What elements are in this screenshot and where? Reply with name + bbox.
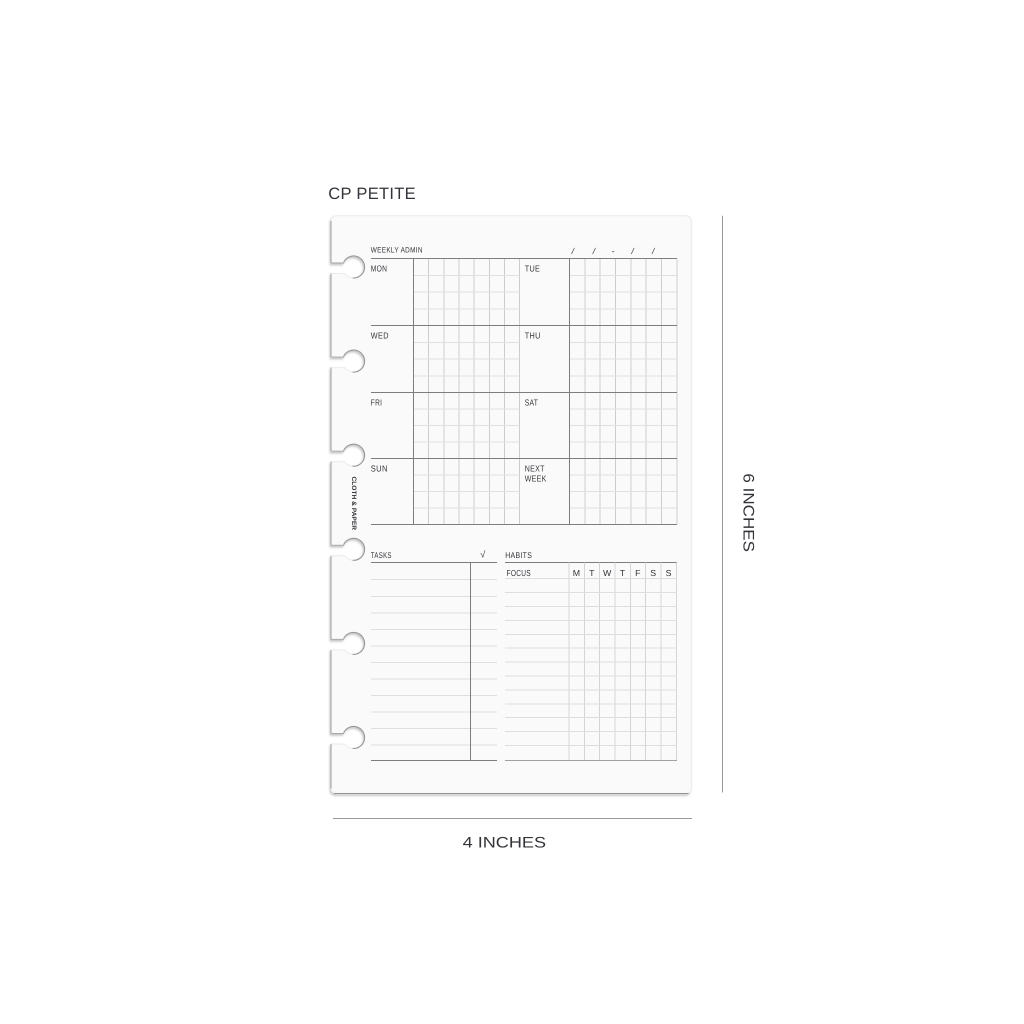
svg-text:M: M <box>573 568 581 578</box>
svg-text:F: F <box>635 568 641 578</box>
svg-text:TASKS: TASKS <box>371 550 392 560</box>
svg-text:NEXT: NEXT <box>525 464 545 474</box>
svg-text:6 INCHES: 6 INCHES <box>740 473 757 552</box>
svg-text:-: - <box>612 246 615 256</box>
svg-text:S: S <box>650 568 656 578</box>
svg-text:FOCUS: FOCUS <box>507 568 532 578</box>
svg-text:√: √ <box>480 549 486 559</box>
svg-text:WEEK: WEEK <box>525 474 547 484</box>
svg-text:CLOTH & PAPER: CLOTH & PAPER <box>350 477 357 531</box>
svg-text:THU: THU <box>525 331 541 341</box>
svg-text:SUN: SUN <box>371 464 388 474</box>
svg-text:HABITS: HABITS <box>505 550 532 560</box>
svg-text:FRI: FRI <box>371 398 383 408</box>
svg-text:T: T <box>589 568 595 578</box>
svg-text:CP PETITE: CP PETITE <box>328 185 416 203</box>
svg-text:MON: MON <box>371 264 388 274</box>
svg-text:SAT: SAT <box>525 398 539 408</box>
svg-text:TUE: TUE <box>525 264 541 274</box>
svg-text:W: W <box>603 568 612 578</box>
svg-text:4 INCHES: 4 INCHES <box>463 834 546 851</box>
svg-text:S: S <box>666 568 672 578</box>
svg-text:WEEKLY ADMIN: WEEKLY ADMIN <box>371 245 423 254</box>
svg-text:T: T <box>620 568 626 578</box>
svg-text:WED: WED <box>371 331 389 341</box>
